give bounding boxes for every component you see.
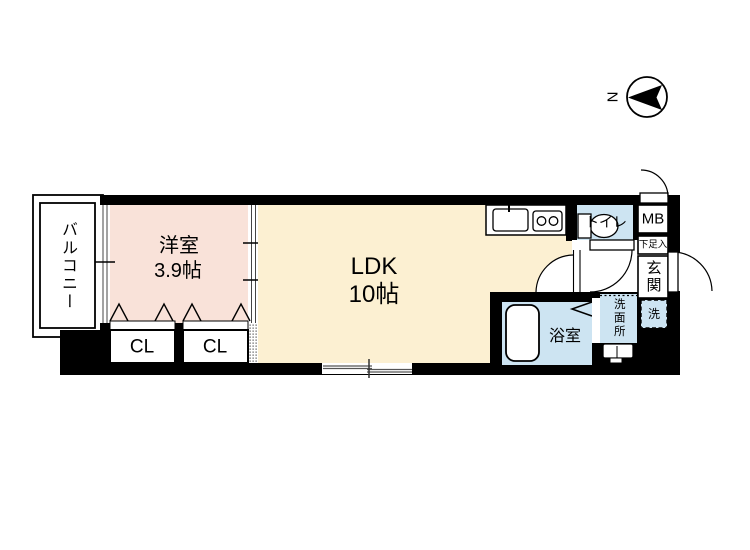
- kitchen-counter-icon: [486, 199, 566, 235]
- western-room-label: 洋室: [159, 236, 199, 256]
- ldk-label: LDK: [351, 255, 398, 279]
- toilet-label: トイレ: [585, 215, 627, 229]
- meter-box-label: MB: [642, 212, 665, 227]
- western-room-size: 3.9帖: [154, 261, 202, 281]
- stove-icon: [533, 211, 562, 231]
- bathroom-label: 浴室: [549, 329, 581, 345]
- ldk-size: 10帖: [349, 283, 400, 307]
- partition-end-wall: [248, 323, 258, 363]
- balcony-label: バルコニー: [59, 221, 75, 311]
- bathtub-icon: [506, 305, 539, 361]
- washroom-label: 洗面所: [612, 298, 624, 339]
- washer-space-label: 洗: [648, 308, 660, 320]
- meter-box-door-icon: [640, 170, 668, 203]
- bathroom-door-opening: [592, 298, 600, 343]
- kitchen-sink-icon: [493, 209, 528, 231]
- floor-plan: N バルコニー 洋室 3.9帖 LDK 10帖 CL CL トイレ MB 下足入…: [0, 0, 750, 550]
- closet-left-label: CL: [130, 338, 154, 357]
- shoe-cabinet-label: 下足入: [639, 240, 668, 250]
- closet-right-label: CL: [203, 338, 227, 357]
- north-compass-icon: [627, 77, 667, 117]
- entrance-door-icon: [668, 252, 712, 292]
- wall-toilet-left: [566, 205, 577, 241]
- wall-bottom-left-extension: [60, 330, 105, 375]
- compass-north-label: N: [606, 92, 621, 103]
- entrance-label: 玄関: [646, 260, 661, 294]
